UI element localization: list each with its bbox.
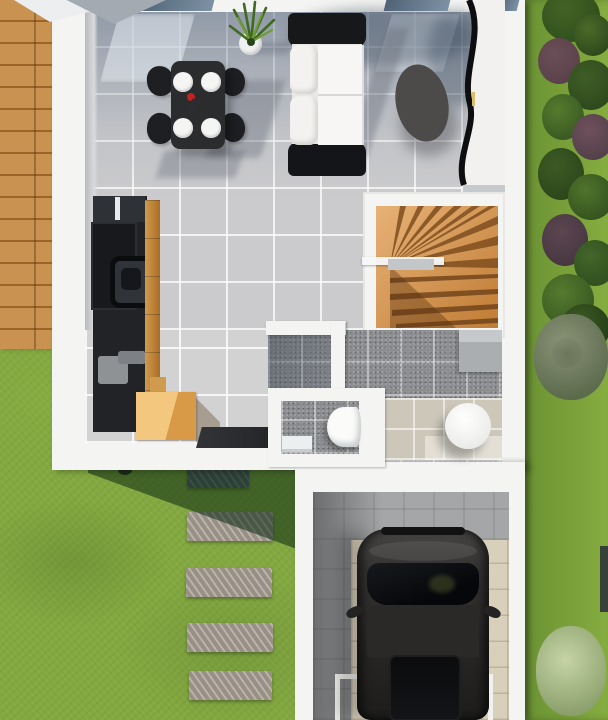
tree-shade-spot	[552, 338, 582, 368]
wooden-deck	[0, 0, 53, 349]
car-windshield	[367, 563, 479, 605]
sofa-back-armrest	[288, 13, 366, 47]
window-glass	[384, 0, 451, 11]
dinner-plate	[201, 118, 221, 138]
light-bush	[536, 626, 606, 716]
toilet	[327, 407, 361, 447]
stepping-stone	[187, 623, 273, 652]
bush-blob	[568, 174, 608, 220]
car-roof	[367, 605, 479, 657]
sofa-front-armrest	[288, 142, 366, 176]
car-hood-shine	[369, 541, 477, 561]
media-unit	[455, 0, 505, 192]
dinner-plate	[173, 118, 193, 138]
car	[357, 527, 490, 720]
garden-right-strip	[522, 0, 608, 720]
dinner-plate	[173, 72, 193, 92]
car-sunroof	[389, 655, 461, 720]
bush-blob	[574, 14, 608, 56]
kitchen-wood-panel	[145, 200, 160, 392]
small-wood-block	[150, 377, 166, 393]
shower-base	[445, 403, 491, 449]
stair-landing	[388, 259, 434, 270]
bush-blob	[572, 114, 608, 160]
car-roof-rack	[381, 527, 465, 535]
dining-shadow	[155, 150, 244, 178]
sofa-back-cushion	[290, 96, 318, 145]
plant-leaves	[224, 0, 280, 58]
sink-basin	[121, 268, 141, 290]
wc-ledge	[282, 436, 312, 452]
sofa-seat-seam	[318, 94, 362, 96]
windshield-reflection	[429, 575, 455, 593]
garden-dark-object	[600, 546, 608, 612]
storage-cabinet	[459, 330, 502, 372]
stepping-stone	[189, 671, 272, 700]
sofa-back-cushion	[290, 45, 318, 94]
floor-plan-render	[0, 0, 608, 720]
dinner-plate	[201, 72, 221, 92]
stepping-stone	[186, 568, 272, 597]
kitchen-counter-item-arm	[118, 351, 146, 364]
cabinet-handle	[115, 197, 120, 220]
wooden-crate	[136, 392, 196, 440]
